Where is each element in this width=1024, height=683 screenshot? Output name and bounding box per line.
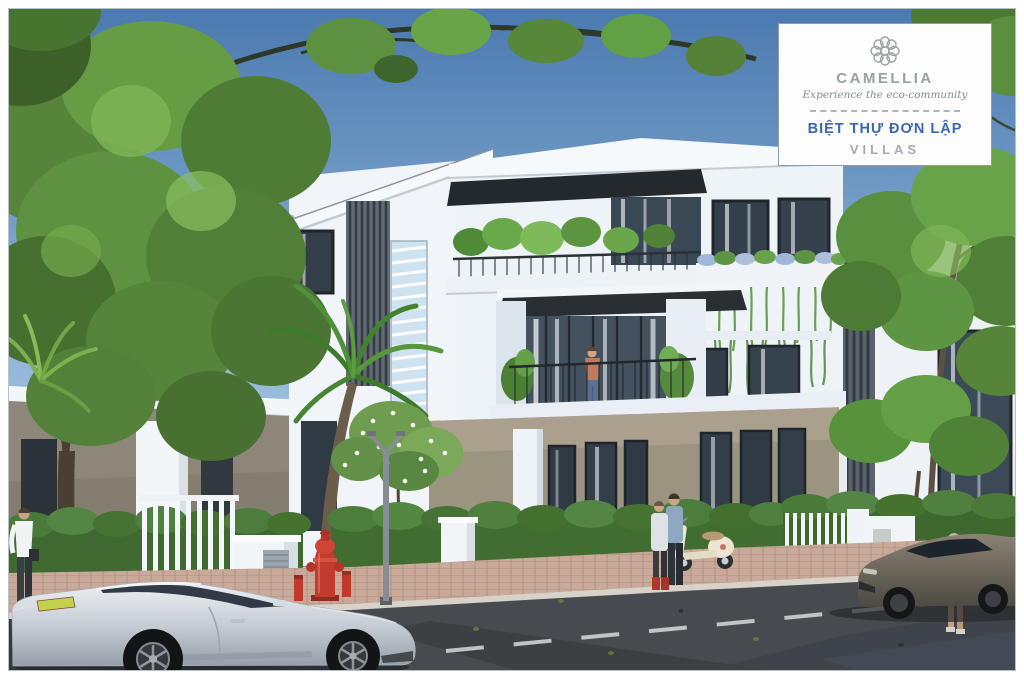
brand-tagline: Experience the eco-community: [803, 89, 968, 101]
product-title-english: VILLAS: [850, 142, 920, 157]
rendered-photo-page: CAMELLIA Experience the eco-community BI…: [0, 0, 1024, 683]
dashed-divider: [810, 110, 960, 112]
upper-window: [779, 199, 829, 257]
upper-window: [713, 201, 768, 259]
project-badge-card: CAMELLIA Experience the eco-community BI…: [778, 23, 992, 166]
couple-on-sidewalk: [651, 494, 683, 591]
brand-name: CAMELLIA: [836, 70, 934, 87]
product-title-vietnamese: BIỆT THỰ ĐƠN LẬP: [808, 121, 963, 137]
camellia-logo-icon: [868, 34, 902, 68]
side-mirror: [273, 600, 286, 606]
